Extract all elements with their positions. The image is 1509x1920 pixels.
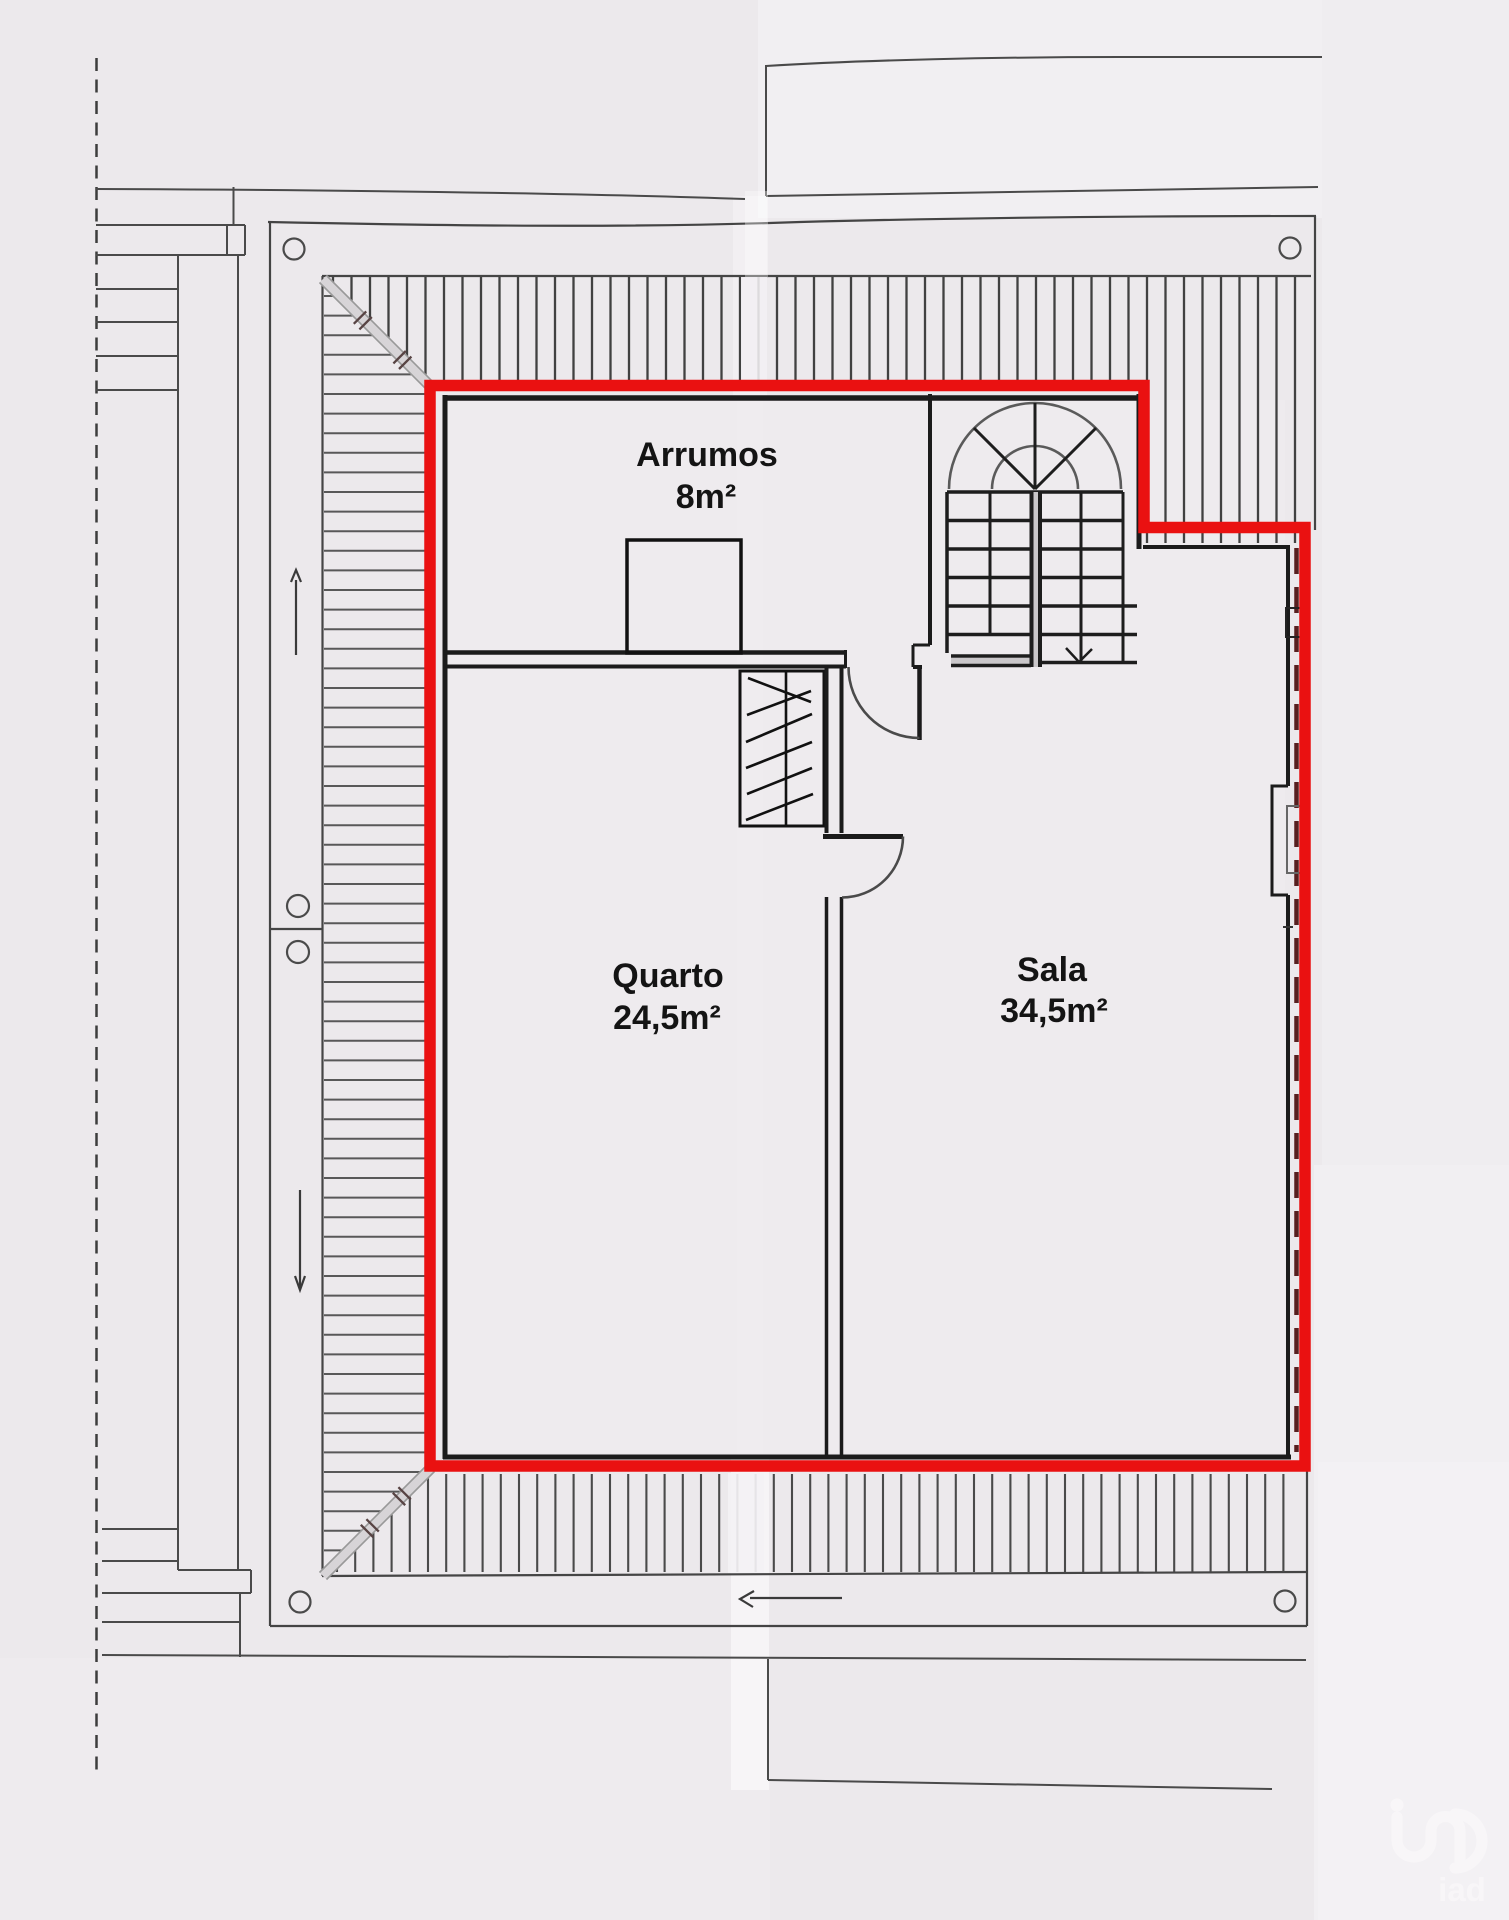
svg-text:Sala: Sala [1017,951,1088,989]
svg-text:Quarto: Quarto [612,957,723,995]
svg-text:iad: iad [1438,1871,1486,1908]
svg-text:34,5m²: 34,5m² [1000,992,1108,1030]
svg-text:24,5m²: 24,5m² [613,999,721,1037]
svg-text:Arrumos: Arrumos [636,436,778,474]
svg-text:8m²: 8m² [676,478,736,516]
